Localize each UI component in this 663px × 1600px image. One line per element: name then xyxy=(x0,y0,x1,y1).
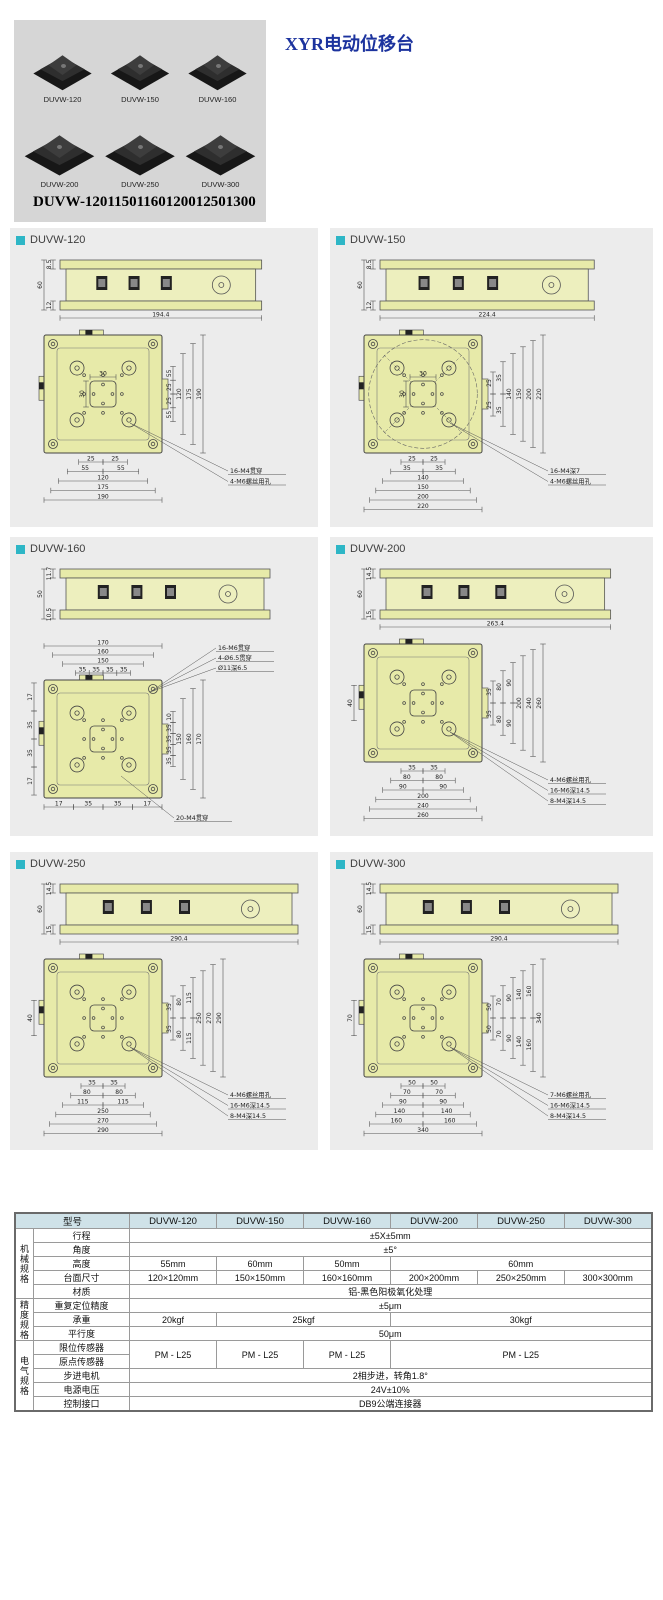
dimension-label: 190 xyxy=(196,388,203,400)
value-cell: 250×250mm xyxy=(478,1271,565,1285)
value-cell: 20kgf xyxy=(130,1313,217,1327)
dimension-label: 15 xyxy=(366,926,373,934)
dimension-label: 260 xyxy=(417,812,429,819)
dimension-label: 140 xyxy=(516,1036,523,1048)
model-column-DUVW-150: DUVW-150 xyxy=(217,1213,304,1229)
photo-row: DUVW-120DUVW-150DUVW-160 xyxy=(16,53,264,104)
dimension-label: 260 xyxy=(536,697,543,709)
dimension-label: 90 xyxy=(399,783,407,790)
DUVW-200-side-view: 6014.515263.4 xyxy=(336,557,638,631)
page-title: XYR电动位移台 xyxy=(285,30,414,56)
dimension-label: 14.5 xyxy=(366,567,373,581)
section-header: DUVW-150 xyxy=(336,232,653,248)
model-header-cell: 型号 xyxy=(15,1213,130,1229)
DUVW-150-top-view: 3030252535351401502002202525353514015020… xyxy=(336,327,638,527)
value-cell: PM - L25 xyxy=(304,1341,391,1369)
dimension-label: 200 xyxy=(526,388,533,400)
dimension-label: 90 xyxy=(506,1034,513,1042)
dimension-label: 35 xyxy=(92,666,100,673)
group-label: 电气规格 xyxy=(15,1341,34,1412)
product-label: DUVW-120 xyxy=(44,95,82,104)
dimension-label: 160 xyxy=(526,985,533,997)
dimension-label: 25 xyxy=(87,455,95,462)
section-bullet-icon xyxy=(336,545,345,554)
drawing-note: 16-M6深14.5 xyxy=(550,786,590,795)
drawing-note: 16-M6深14.5 xyxy=(230,1101,270,1110)
dimension-label: 35 xyxy=(79,666,87,673)
dimension-label: 115 xyxy=(77,1098,89,1105)
value-cell: 50mm xyxy=(304,1257,391,1271)
DUVW-200-top-view: 3535808090902002402604035358080909020024… xyxy=(336,636,638,836)
section-header: DUVW-200 xyxy=(336,541,653,557)
section-bullet-icon xyxy=(16,545,25,554)
section-header: DUVW-160 xyxy=(16,541,318,557)
dimension-label: 140 xyxy=(516,988,523,1000)
dimension-label: 30 xyxy=(99,370,107,377)
dimension-label: 30 xyxy=(79,390,86,398)
dimension-label: 60 xyxy=(37,905,44,913)
dimension-label: 80 xyxy=(83,1089,91,1096)
dimension-label: 150 xyxy=(176,733,183,745)
dimension-label: 35 xyxy=(430,764,438,771)
section-header: DUVW-300 xyxy=(336,856,653,872)
dimension-label: 194.4 xyxy=(152,311,169,318)
value-cell: 24V±10% xyxy=(130,1383,652,1397)
row-label: 重复定位精度 xyxy=(34,1299,130,1313)
dimension-label: 115 xyxy=(186,1032,193,1044)
table-row: 精度规格重复定位精度±5μm xyxy=(15,1299,652,1313)
drawing-note: 8-M4深14.5 xyxy=(550,796,586,805)
model-column-DUVW-200: DUVW-200 xyxy=(391,1213,478,1229)
dimension-label: 35 xyxy=(110,1079,118,1086)
dimension-label: 25 xyxy=(111,455,119,462)
dimension-label: 90 xyxy=(399,1098,407,1105)
dimension-label: 25 xyxy=(486,401,493,409)
value-cell: 150×150mm xyxy=(217,1271,304,1285)
dimension-label: 220 xyxy=(536,388,543,400)
model-column-DUVW-160: DUVW-160 xyxy=(304,1213,391,1229)
row-label: 平行度 xyxy=(34,1327,130,1341)
dimension-label: 140 xyxy=(441,1108,453,1115)
row-label: 台面尺寸 xyxy=(34,1271,130,1285)
dimension-label: 80 xyxy=(176,1030,183,1038)
row-label: 材质 xyxy=(34,1285,130,1299)
value-cell: 160×160mm xyxy=(304,1271,391,1285)
value-cell: 120×120mm xyxy=(130,1271,217,1285)
section-bullet-icon xyxy=(336,860,345,869)
dimension-label: 160 xyxy=(526,1039,533,1051)
dimension-label: 40 xyxy=(347,699,354,707)
dimension-label: 250 xyxy=(97,1108,109,1115)
row-label: 步进电机 xyxy=(34,1369,130,1383)
dimension-label: 35 xyxy=(27,721,34,729)
DUVW-120-top-view: 3030552525551201751902525555512017519016… xyxy=(16,327,318,527)
table-row: 步进电机2相步进，转角1.8° xyxy=(15,1369,652,1383)
dimension-label: 10.5 xyxy=(46,608,53,622)
section-DUVW-200: DUVW-2006014.515263.43535808090902002402… xyxy=(330,537,653,836)
value-cell: 60mm xyxy=(217,1257,304,1271)
dimension-label: 80 xyxy=(403,774,411,781)
table-row: 高度55mm60mm50mm60mm xyxy=(15,1257,652,1271)
section-bullet-icon xyxy=(16,236,25,245)
dimension-label: 120 xyxy=(97,474,109,481)
dimension-label: 50 xyxy=(430,1079,438,1086)
DUVW-160-top-view: 1035353535150160170173535173535353515016… xyxy=(16,636,318,836)
dimension-label: 290.4 xyxy=(490,935,507,942)
drawing-note: 16-M6贯穿 xyxy=(218,643,250,652)
dimension-label: 70 xyxy=(435,1089,443,1096)
dimension-label: 17 xyxy=(55,800,63,807)
dimension-label: 10 xyxy=(166,713,173,721)
model-column-DUVW-250: DUVW-250 xyxy=(478,1213,565,1229)
drawing-note: 4-M6螺丝用孔 xyxy=(230,1090,272,1099)
dimension-label: 17 xyxy=(143,800,151,807)
stage-image xyxy=(103,132,177,178)
product-photo-DUVW-150: DUVW-150 xyxy=(109,53,171,104)
dimension-label: 25 xyxy=(408,455,416,462)
drawing-note: 7-M6螺丝用孔 xyxy=(550,1090,592,1099)
dimension-label: 290 xyxy=(97,1127,109,1134)
row-label: 限位传感器 xyxy=(34,1341,130,1355)
product-photo-DUVW-250: DUVW-250 xyxy=(103,132,177,189)
value-cell: DB9公端连接器 xyxy=(130,1397,652,1412)
value-cell: 铝-黑色阳极氧化处理 xyxy=(130,1285,652,1299)
stage-image xyxy=(109,53,171,93)
section-title: DUVW-120 xyxy=(30,234,85,246)
value-cell: 50μm xyxy=(130,1327,652,1341)
dimension-label: 240 xyxy=(526,697,533,709)
section-bullet-icon xyxy=(336,236,345,245)
dimension-label: 35 xyxy=(166,735,173,743)
value-cell: PM - L25 xyxy=(391,1341,652,1369)
dimension-label: 14.5 xyxy=(366,882,373,896)
value-cell: PM - L25 xyxy=(217,1341,304,1369)
model-column-DUVW-300: DUVW-300 xyxy=(565,1213,652,1229)
section-bullet-icon xyxy=(16,860,25,869)
dimension-label: 35 xyxy=(486,688,493,696)
model-column-DUVW-120: DUVW-120 xyxy=(130,1213,217,1229)
drawing-note: 16-M6深14.5 xyxy=(550,1101,590,1110)
section-DUVW-150: DUVW-150608.512224.430302525353514015020… xyxy=(330,228,653,527)
drawing-note: 4-M6螺丝用孔 xyxy=(550,477,592,486)
section-DUVW-160: DUVW-1605011.710.51035353535150160170173… xyxy=(10,537,318,836)
dimension-label: 160 xyxy=(97,648,109,655)
dimension-label: 340 xyxy=(417,1127,429,1134)
row-label: 行程 xyxy=(34,1229,130,1243)
dimension-label: 8.5 xyxy=(46,260,53,270)
dimension-label: 150 xyxy=(516,388,523,400)
product-label: DUVW-300 xyxy=(202,180,240,189)
DUVW-250-side-view: 6014.515290.4 xyxy=(16,872,318,946)
section-title: DUVW-150 xyxy=(350,234,405,246)
value-cell: 60mm xyxy=(391,1257,652,1271)
table-row: 平行度50μm xyxy=(15,1327,652,1341)
dimension-label: 263.4 xyxy=(487,620,504,627)
product-photo-DUVW-120: DUVW-120 xyxy=(32,53,94,104)
dimension-label: 115 xyxy=(186,992,193,1004)
dimension-label: 25 xyxy=(166,383,173,391)
dimension-label: 35 xyxy=(88,1079,96,1086)
dimension-label: 50 xyxy=(408,1079,416,1086)
spec-table-wrap: 型号DUVW-120DUVW-150DUVW-160DUVW-200DUVW-2… xyxy=(14,1212,653,1412)
table-row: 电气规格限位传感器PM - L25PM - L25PM - L25PM - L2… xyxy=(15,1341,652,1355)
row-label: 控制接口 xyxy=(34,1397,130,1412)
product-photo-DUVW-200: DUVW-200 xyxy=(23,132,97,189)
dimension-label: 90 xyxy=(506,679,513,687)
dimension-label: 200 xyxy=(516,697,523,709)
value-cell: ±5° xyxy=(130,1243,652,1257)
dimension-label: 60 xyxy=(37,281,44,289)
dimension-label: 175 xyxy=(97,484,109,491)
section-DUVW-250: DUVW-2506014.515290.43535808011511525027… xyxy=(10,852,318,1150)
dimension-label: 270 xyxy=(97,1117,109,1124)
section-title: DUVW-300 xyxy=(350,858,405,870)
dimension-label: 120 xyxy=(176,388,183,400)
dimension-label: 25 xyxy=(430,455,438,462)
dimension-label: 160 xyxy=(444,1117,456,1124)
dimension-label: 35 xyxy=(114,800,122,807)
dimension-label: 240 xyxy=(417,802,429,809)
product-label: DUVW-200 xyxy=(41,180,79,189)
dimension-label: 200 xyxy=(417,493,429,500)
dimension-label: 25 xyxy=(166,397,173,405)
dimension-label: 220 xyxy=(417,503,429,510)
dimension-label: 80 xyxy=(496,683,503,691)
stage-image xyxy=(23,132,97,178)
stage-image xyxy=(32,53,94,93)
dimension-label: 55 xyxy=(117,465,125,472)
drawing-note: 4-M6螺丝用孔 xyxy=(550,775,592,784)
product-photo-panel: DUVW-120DUVW-150DUVW-160DUVW-200DUVW-250… xyxy=(14,20,266,222)
section-DUVW-120: DUVW-120608.512194.430305525255512017519… xyxy=(10,228,318,527)
dimension-label: 290.4 xyxy=(170,935,187,942)
dimension-label: 160 xyxy=(186,733,193,745)
product-label: DUVW-160 xyxy=(199,95,237,104)
table-row: 角度±5° xyxy=(15,1243,652,1257)
section-header: DUVW-250 xyxy=(16,856,318,872)
dimension-label: 15 xyxy=(46,926,53,934)
dimension-label: 25 xyxy=(486,379,493,387)
dimension-label: 35 xyxy=(106,666,114,673)
dimension-label: 15 xyxy=(366,611,373,619)
dimension-label: 55 xyxy=(166,369,173,377)
table-row: 承重20kgf25kgf30kgf xyxy=(15,1313,652,1327)
product-photo-DUVW-160: DUVW-160 xyxy=(187,53,249,104)
section-title: DUVW-160 xyxy=(30,543,85,555)
DUVW-300-top-view: 5050707090901401401601603407050507070909… xyxy=(336,951,638,1151)
dimension-label: 17 xyxy=(27,777,34,785)
DUVW-120-side-view: 608.512194.4 xyxy=(16,248,318,322)
dimension-label: 35 xyxy=(27,749,34,757)
drawing-note: 16-M4深7 xyxy=(550,466,580,475)
dimension-label: 55 xyxy=(166,411,173,419)
value-cell: ±5μm xyxy=(130,1299,652,1313)
row-label: 电源电压 xyxy=(34,1383,130,1397)
dimension-label: 35 xyxy=(496,374,503,382)
dimension-label: 60 xyxy=(357,281,364,289)
row-label: 承重 xyxy=(34,1313,130,1327)
section-header: DUVW-120 xyxy=(16,232,318,248)
value-cell: 25kgf xyxy=(217,1313,391,1327)
dimension-label: 40 xyxy=(27,1014,34,1022)
dimension-label: 270 xyxy=(206,1012,213,1024)
dimension-label: 35 xyxy=(84,800,92,807)
drawing-note: 8-M4深14.5 xyxy=(230,1111,266,1120)
dimension-label: 90 xyxy=(506,994,513,1002)
dimension-label: 35 xyxy=(486,710,493,718)
spec-table: 型号DUVW-120DUVW-150DUVW-160DUVW-200DUVW-2… xyxy=(14,1212,653,1412)
table-row: 材质铝-黑色阳极氧化处理 xyxy=(15,1285,652,1299)
dimension-label: 340 xyxy=(536,1012,543,1024)
DUVW-160-side-view: 5011.710.5 xyxy=(16,557,318,631)
series-models-line: DUVW-12011501160120012501300 xyxy=(33,194,256,211)
dimension-label: 80 xyxy=(115,1089,123,1096)
dimension-label: 35 xyxy=(166,746,173,754)
DUVW-250-top-view: 3535808011511525027029040353580801151152… xyxy=(16,951,318,1151)
dimension-label: 35 xyxy=(166,757,173,765)
value-cell: 30kgf xyxy=(391,1313,652,1327)
dimension-label: 80 xyxy=(176,998,183,1006)
DUVW-150-side-view: 608.512224.4 xyxy=(336,248,638,322)
table-row: 台面尺寸120×120mm150×150mm160×160mm200×200mm… xyxy=(15,1271,652,1285)
dimension-label: 70 xyxy=(347,1014,354,1022)
dimension-label: 170 xyxy=(97,639,109,646)
drawing-note: 20-M4贯穿 xyxy=(176,813,208,822)
dimension-label: 35 xyxy=(403,465,411,472)
row-label: 角度 xyxy=(34,1243,130,1257)
section-title: DUVW-250 xyxy=(30,858,85,870)
dimension-label: 200 xyxy=(417,793,429,800)
dimension-label: 35 xyxy=(166,724,173,732)
dimension-label: 60 xyxy=(357,590,364,598)
dimension-label: 150 xyxy=(97,657,109,664)
value-cell: ±5X±5mm xyxy=(130,1229,652,1243)
dimension-label: 160 xyxy=(391,1117,403,1124)
dimension-label: 35 xyxy=(435,465,443,472)
section-title: DUVW-200 xyxy=(350,543,405,555)
dimension-label: 30 xyxy=(419,370,427,377)
drawing-note: 4-Ø6.5贯穿 xyxy=(218,653,252,662)
dimension-label: 12 xyxy=(366,302,373,310)
value-cell: 300×300mm xyxy=(565,1271,652,1285)
stage-image xyxy=(187,53,249,93)
dimension-label: 8.5 xyxy=(366,260,373,270)
dimension-label: 35 xyxy=(496,406,503,414)
table-header-row: 型号DUVW-120DUVW-150DUVW-160DUVW-200DUVW-2… xyxy=(15,1213,652,1229)
dimension-label: 35 xyxy=(166,1003,173,1011)
value-cell: 200×200mm xyxy=(391,1271,478,1285)
dimension-label: 70 xyxy=(403,1089,411,1096)
section-DUVW-300: DUVW-3006014.515290.45050707090901401401… xyxy=(330,852,653,1150)
datasheet-page: DUVW-120DUVW-150DUVW-160DUVW-200DUVW-250… xyxy=(0,0,663,1600)
value-cell: PM - L25 xyxy=(130,1341,217,1369)
table-row: 控制接口DB9公端连接器 xyxy=(15,1397,652,1412)
stage-image xyxy=(184,132,258,178)
group-label: 机械规格 xyxy=(15,1229,34,1299)
dimension-label: 30 xyxy=(399,390,406,398)
dimension-label: 170 xyxy=(196,733,203,745)
drawing-note: Ø11深6.5 xyxy=(218,663,247,672)
drawing-note: 16-M4贯穿 xyxy=(230,466,262,475)
row-label: 高度 xyxy=(34,1257,130,1271)
photo-row: DUVW-200DUVW-250DUVW-300 xyxy=(16,132,264,189)
dimension-label: 35 xyxy=(120,666,128,673)
dimension-label: 12 xyxy=(46,302,53,310)
row-label: 原点传感器 xyxy=(34,1355,130,1369)
dimension-label: 90 xyxy=(506,719,513,727)
dimension-label: 55 xyxy=(81,465,89,472)
dimension-label: 14.5 xyxy=(46,882,53,896)
dimension-label: 11.7 xyxy=(46,567,53,581)
value-cell: 2相步进，转角1.8° xyxy=(130,1369,652,1383)
drawing-note: 4-M6螺丝用孔 xyxy=(230,477,272,486)
dimension-label: 150 xyxy=(417,484,429,491)
dimension-label: 250 xyxy=(196,1012,203,1024)
dimension-label: 140 xyxy=(394,1108,406,1115)
dimension-label: 60 xyxy=(357,905,364,913)
value-cell: 55mm xyxy=(130,1257,217,1271)
dimension-label: 17 xyxy=(27,693,34,701)
dimension-label: 140 xyxy=(417,474,429,481)
dimension-label: 35 xyxy=(166,1025,173,1033)
dimension-label: 70 xyxy=(496,1030,503,1038)
dimension-label: 190 xyxy=(97,493,109,500)
dimension-label: 70 xyxy=(496,998,503,1006)
drawing-note: 8-M4深14.5 xyxy=(550,1111,586,1120)
product-label: DUVW-250 xyxy=(121,180,159,189)
group-label: 精度规格 xyxy=(15,1299,34,1341)
dimension-label: 50 xyxy=(486,1025,493,1033)
dimension-label: 80 xyxy=(496,715,503,723)
dimension-label: 90 xyxy=(439,783,447,790)
table-row: 电源电压24V±10% xyxy=(15,1383,652,1397)
dimension-label: 224.4 xyxy=(479,311,496,318)
DUVW-300-side-view: 6014.515290.4 xyxy=(336,872,638,946)
dimension-label: 90 xyxy=(439,1098,447,1105)
dimension-label: 175 xyxy=(186,388,193,400)
dimension-label: 140 xyxy=(506,388,513,400)
dimension-label: 80 xyxy=(435,774,443,781)
table-row: 机械规格行程±5X±5mm xyxy=(15,1229,652,1243)
product-label: DUVW-150 xyxy=(121,95,159,104)
dimension-label: 50 xyxy=(37,590,44,598)
dimension-label: 115 xyxy=(117,1098,129,1105)
dimension-label: 50 xyxy=(486,1003,493,1011)
dimension-label: 290 xyxy=(216,1012,223,1024)
product-photo-DUVW-300: DUVW-300 xyxy=(184,132,258,189)
dimension-label: 35 xyxy=(408,764,416,771)
